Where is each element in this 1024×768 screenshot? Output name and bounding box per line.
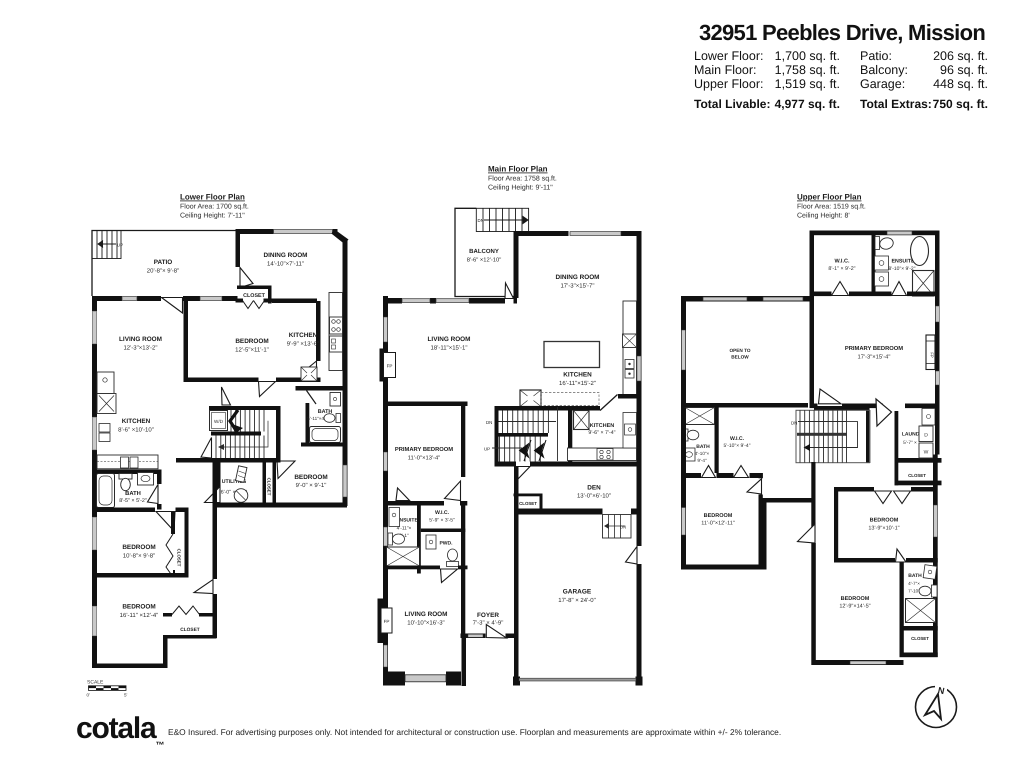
svg-text:Ceiling Height: 9'-11": Ceiling Height: 9'-11": [488, 184, 553, 192]
svg-text:UP: UP: [484, 447, 490, 452]
svg-text:7'-10": 7'-10": [908, 589, 920, 594]
svg-text:8'-10"× 9'-2": 8'-10"× 9'-2": [888, 266, 915, 272]
svg-text:18'-11"×15'-1": 18'-11"×15'-1": [431, 345, 468, 352]
svg-text:9'-0" × 9'-1": 9'-0" × 9'-1": [296, 482, 327, 489]
svg-text:FP: FP: [387, 364, 393, 369]
svg-text:8'-5" × 5'-2": 8'-5" × 5'-2": [119, 498, 147, 504]
svg-text:FP: FP: [384, 619, 390, 624]
svg-text:LIVING ROOM: LIVING ROOM: [428, 336, 471, 343]
svg-text:5'-10"× 9'-4": 5'-10"× 9'-4": [723, 443, 750, 449]
svg-text:DINING ROOM: DINING ROOM: [263, 252, 307, 259]
svg-text:DEN: DEN: [587, 485, 601, 492]
svg-text:W.I.C.: W.I.C.: [730, 436, 745, 442]
svg-text:9'-6" × 7'-4": 9'-6" × 7'-4": [588, 430, 615, 436]
svg-text:PWD.: PWD.: [439, 541, 453, 547]
svg-text:KITCHEN: KITCHEN: [590, 423, 614, 429]
svg-text:11'-0"×13'-4": 11'-0"×13'-4": [408, 455, 441, 462]
svg-text:KITCHEN: KITCHEN: [563, 372, 592, 379]
svg-text:W.I.C.: W.I.C.: [835, 259, 850, 265]
svg-text:Floor Area: 1700 sq.ft.: Floor Area: 1700 sq.ft.: [180, 203, 249, 211]
svg-text:Ceiling Height: 8': Ceiling Height: 8': [797, 212, 850, 220]
svg-text:DN: DN: [620, 525, 626, 530]
svg-text:BALCONY: BALCONY: [469, 248, 499, 255]
svg-text:W.I.C.: W.I.C.: [435, 510, 450, 516]
svg-text:12'-3"×13'-2": 12'-3"×13'-2": [123, 345, 157, 352]
svg-text:Floor Area: 1519 sq.ft.: Floor Area: 1519 sq.ft.: [797, 203, 866, 211]
svg-text:BEDROOM: BEDROOM: [841, 596, 870, 602]
svg-text:PRIMARY BEDROOM: PRIMARY BEDROOM: [845, 345, 903, 352]
svg-text:16'-11"×15'-2": 16'-11"×15'-2": [559, 380, 596, 387]
svg-text:KITCHEN: KITCHEN: [122, 418, 151, 425]
svg-text:UP: UP: [117, 243, 123, 248]
svg-text:LIVING ROOM: LIVING ROOM: [405, 611, 448, 618]
svg-text:BEDROOM: BEDROOM: [122, 604, 155, 611]
svg-text:BATH: BATH: [908, 573, 922, 579]
svg-text:0': 0': [87, 693, 91, 698]
svg-text:CLOSET: CLOSET: [180, 627, 200, 633]
svg-text:DN: DN: [478, 218, 484, 223]
svg-text:W/D: W/D: [214, 419, 224, 424]
svg-text:LIVING ROOM: LIVING ROOM: [119, 336, 162, 343]
svg-text:BEDROOM: BEDROOM: [122, 544, 155, 551]
svg-text:DINING ROOM: DINING ROOM: [555, 274, 599, 281]
svg-text:9'-4": 9'-4": [697, 458, 707, 463]
svg-text:5': 5': [124, 693, 128, 698]
svg-text:CLOSET: CLOSET: [519, 501, 537, 506]
svg-text:14'-10"×7'-11": 14'-10"×7'-11": [267, 261, 304, 268]
svg-text:PRIMARY BEDROOM: PRIMARY BEDROOM: [395, 446, 453, 453]
svg-text:8'-6" ×12'-10": 8'-6" ×12'-10": [467, 257, 502, 264]
svg-text:10'-8"× 9'-8": 10'-8"× 9'-8": [123, 553, 155, 560]
svg-text:PATIO: PATIO: [154, 259, 173, 266]
svg-text:D: D: [924, 433, 928, 439]
svg-text:CLOSET: CLOSET: [243, 293, 266, 299]
svg-text:BEDROOM: BEDROOM: [870, 518, 899, 524]
svg-text:4'-10"×: 4'-10"×: [695, 451, 710, 456]
svg-text:4'-7"×: 4'-7"×: [908, 581, 920, 586]
svg-text:16'-11" ×12'-4": 16'-11" ×12'-4": [120, 612, 159, 619]
svg-text:10'-10"×16'-3": 10'-10"×16'-3": [407, 620, 444, 627]
svg-text:OPEN TO: OPEN TO: [729, 348, 750, 353]
svg-text:GARAGE: GARAGE: [563, 589, 592, 596]
svg-text:5'-9" × 3'-5": 5'-9" × 3'-5": [429, 518, 455, 524]
svg-text:BATH: BATH: [696, 444, 710, 450]
svg-text:12'-9"×14'-5": 12'-9"×14'-5": [839, 604, 870, 610]
svg-text:Ceiling Height: 7'-11": Ceiling Height: 7'-11": [180, 212, 245, 220]
svg-text:FP: FP: [930, 352, 935, 358]
svg-text:KITCHEN: KITCHEN: [289, 332, 318, 339]
svg-text:13'-0"×6'-10": 13'-0"×6'-10": [577, 493, 611, 500]
svg-text:8'-1" × 9'-2": 8'-1" × 9'-2": [828, 266, 855, 272]
svg-text:17'-3"×15'-7": 17'-3"×15'-7": [560, 283, 594, 290]
svg-text:BELOW: BELOW: [731, 355, 749, 360]
svg-text:17'-8" × 24'-0": 17'-8" × 24'-0": [558, 597, 595, 604]
svg-text:CLOSET: CLOSET: [267, 478, 272, 496]
svg-text:BATH: BATH: [125, 491, 141, 497]
svg-text:Lower Floor Plan: Lower Floor Plan: [180, 193, 245, 202]
svg-text:DN: DN: [486, 420, 492, 425]
svg-text:11'-0"×12'-11": 11'-0"×12'-11": [701, 521, 735, 527]
svg-text:SCALE: SCALE: [87, 680, 104, 686]
svg-text:13'-9"×10'-1": 13'-9"×10'-1": [868, 526, 899, 532]
svg-text:BEDROOM: BEDROOM: [235, 338, 268, 345]
svg-text:CLOSET: CLOSET: [908, 473, 926, 478]
svg-text:20'-8"× 9'-8": 20'-8"× 9'-8": [147, 268, 179, 275]
svg-text:17'-3"×15'-4": 17'-3"×15'-4": [858, 354, 891, 361]
svg-text:Upper Floor Plan: Upper Floor Plan: [797, 193, 862, 202]
svg-text:9'-9" ×13'-6": 9'-9" ×13'-6": [287, 341, 319, 348]
svg-text:BEDROOM: BEDROOM: [704, 513, 733, 519]
svg-text:ENSUITE: ENSUITE: [892, 259, 915, 265]
svg-text:BEDROOM: BEDROOM: [294, 474, 327, 481]
svg-text:W: W: [924, 450, 929, 456]
svg-text:DN: DN: [791, 421, 797, 426]
svg-text:12'-5"×11'-1": 12'-5"×11'-1": [235, 347, 269, 354]
svg-text:FOYER: FOYER: [477, 612, 499, 619]
svg-text:Main Floor Plan: Main Floor Plan: [488, 165, 548, 174]
svg-text:CLOSET: CLOSET: [911, 636, 929, 641]
svg-text:Floor Area: 1758 sq.ft.: Floor Area: 1758 sq.ft.: [488, 175, 557, 183]
svg-text:5'-7" ×: 5'-7" ×: [903, 440, 917, 446]
svg-text:CLOSET: CLOSET: [177, 549, 182, 567]
svg-text:8'-6" ×10'-10": 8'-6" ×10'-10": [118, 427, 154, 434]
